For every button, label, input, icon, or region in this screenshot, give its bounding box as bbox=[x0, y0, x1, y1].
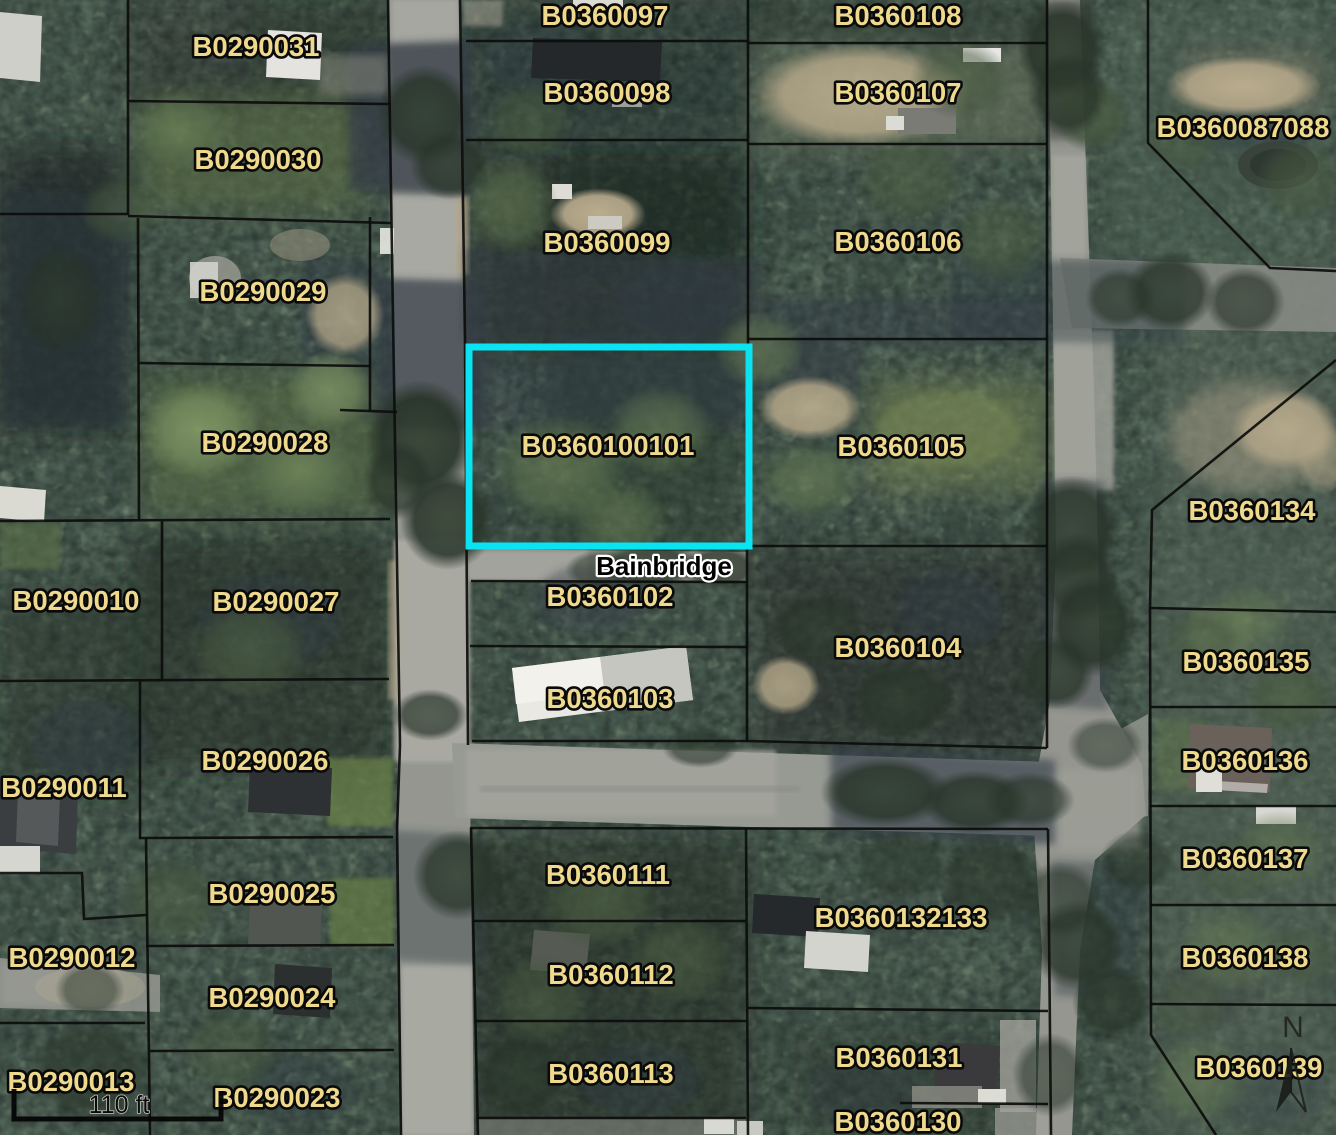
svg-text:B0290029: B0290029 bbox=[200, 276, 327, 307]
svg-text:B0360104: B0360104 bbox=[835, 632, 963, 663]
svg-text:B0290010: B0290010 bbox=[13, 585, 140, 616]
svg-text:B0360134: B0360134 bbox=[1189, 495, 1317, 526]
svg-text:Bainbridge: Bainbridge bbox=[596, 551, 732, 581]
svg-text:B0360106: B0360106 bbox=[835, 226, 962, 257]
svg-text:B0360100101: B0360100101 bbox=[522, 430, 695, 461]
svg-text:B0360105: B0360105 bbox=[838, 431, 965, 462]
svg-text:B0360139: B0360139 bbox=[1196, 1052, 1323, 1083]
svg-text:B0290031: B0290031 bbox=[193, 31, 320, 62]
svg-text:B0360135: B0360135 bbox=[1183, 646, 1310, 677]
svg-text:B0360111: B0360111 bbox=[546, 859, 670, 890]
svg-text:B0360087088: B0360087088 bbox=[1157, 112, 1330, 143]
svg-text:B0360131: B0360131 bbox=[836, 1042, 963, 1073]
svg-text:B0360113: B0360113 bbox=[548, 1058, 673, 1089]
svg-text:B0360102: B0360102 bbox=[547, 581, 674, 612]
svg-text:B0290012: B0290012 bbox=[9, 942, 136, 973]
svg-text:B0290025: B0290025 bbox=[209, 878, 336, 909]
svg-text:B0360112: B0360112 bbox=[548, 959, 673, 990]
svg-text:B0360099: B0360099 bbox=[544, 227, 671, 258]
svg-text:B0290024: B0290024 bbox=[209, 982, 337, 1013]
svg-text:B0360098: B0360098 bbox=[544, 77, 671, 108]
svg-text:B0360108: B0360108 bbox=[835, 0, 962, 31]
svg-text:N: N bbox=[1282, 1011, 1304, 1044]
svg-text:B0360137: B0360137 bbox=[1182, 843, 1309, 874]
svg-text:B0290023: B0290023 bbox=[214, 1082, 341, 1113]
svg-text:B0360097: B0360097 bbox=[542, 0, 669, 31]
svg-text:B0360136: B0360136 bbox=[1182, 745, 1309, 776]
svg-text:B0360103: B0360103 bbox=[547, 683, 674, 714]
svg-text:B0290030: B0290030 bbox=[195, 144, 322, 175]
svg-text:B0290028: B0290028 bbox=[202, 427, 329, 458]
svg-text:B0360138: B0360138 bbox=[1182, 942, 1309, 973]
svg-text:B0290027: B0290027 bbox=[213, 586, 340, 617]
svg-text:B0360130: B0360130 bbox=[835, 1106, 962, 1135]
svg-text:110 ft: 110 ft bbox=[89, 1091, 150, 1119]
svg-text:B0290026: B0290026 bbox=[202, 745, 329, 776]
svg-text:B0360132133: B0360132133 bbox=[815, 902, 988, 933]
svg-text:B0360107: B0360107 bbox=[835, 77, 962, 108]
svg-text:B0290011: B0290011 bbox=[1, 772, 126, 803]
